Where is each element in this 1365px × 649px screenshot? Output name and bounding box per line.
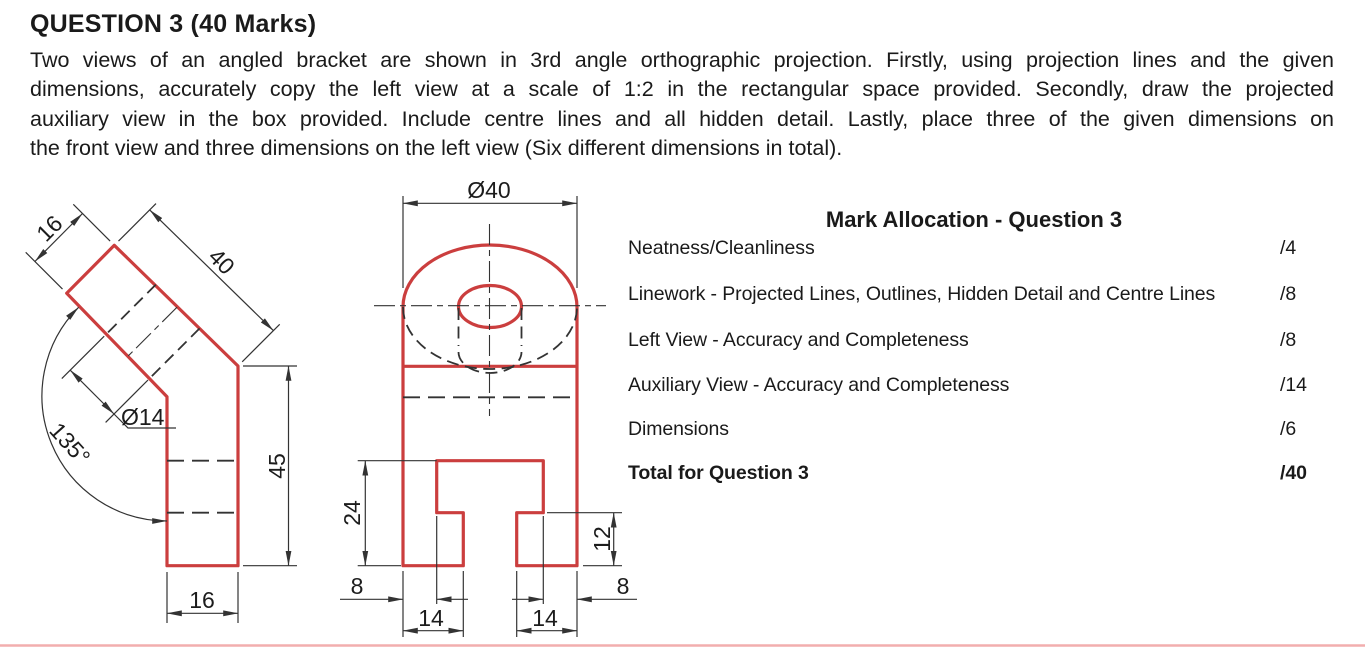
mark-row: Dimensions /6 [628,418,1320,442]
mark-row: Linework - Projected Lines, Outlines, Hi… [628,283,1320,307]
mark-row-score: /8 [1280,329,1296,352]
mark-row: Neatness/Cleanliness /4 [628,237,1320,261]
mark-row-score: /14 [1280,374,1307,397]
dim-label-left-offset: 8 [351,573,364,599]
dim-label-right-foot: 14 [532,605,558,631]
mark-row-score: /40 [1280,462,1307,485]
front-view-outline [403,245,577,566]
dim-label-arm-width: 16 [31,210,67,246]
dim-label-overall-diameter: Ø40 [467,177,510,203]
mark-row-label: Linework - Projected Lines, Outlines, Hi… [628,283,1215,305]
dim-label-arm-length: 40 [203,243,239,279]
mark-allocation-table: Mark Allocation - Question 3 Neatness/Cl… [628,207,1320,497]
mark-row-label: Auxiliary View - Accuracy and Completene… [628,374,1009,396]
mark-row: Left View - Accuracy and Completeness /8 [628,329,1320,353]
mark-row-score: /6 [1280,418,1296,441]
extension-line [73,204,110,241]
dimension-line [70,370,114,414]
mark-row-label: Left View - Accuracy and Completeness [628,329,969,351]
mark-row-total: Total for Question 3 /40 [628,462,1320,486]
mark-row-label: Total for Question 3 [628,462,809,484]
dim-label-hole-diameter: Ø14 [121,404,165,430]
extension-line [26,252,63,289]
hole-centre-line [128,307,177,356]
left-view-drawing: 16 40 Ø14 135° 45 16 [26,204,297,623]
dim-label-left-foot: 14 [418,605,444,631]
extension-line [62,336,104,378]
dim-label-base-width: 16 [189,587,215,613]
mark-table-title: Mark Allocation - Question 3 [628,207,1320,233]
extension-line [119,204,157,242]
hidden-hole-line [149,328,199,378]
dim-label-right-offset: 8 [617,573,630,599]
dim-label-step-height: 12 [589,526,615,552]
mark-row-score: /4 [1280,237,1296,260]
dim-label-column-height: 45 [264,453,290,479]
extension-line [242,324,280,362]
front-view-drawing: Ø40 24 12 8 8 14 14 [339,177,637,637]
mark-row-score: /8 [1280,283,1296,306]
mark-row-label: Dimensions [628,418,729,440]
dim-label-slot-depth: 24 [339,500,365,526]
dimension-line [150,210,274,331]
mark-row-label: Neatness/Cleanliness [628,237,815,259]
hidden-hole-line [106,285,156,335]
mark-row: Auxiliary View - Accuracy and Completene… [628,374,1320,398]
